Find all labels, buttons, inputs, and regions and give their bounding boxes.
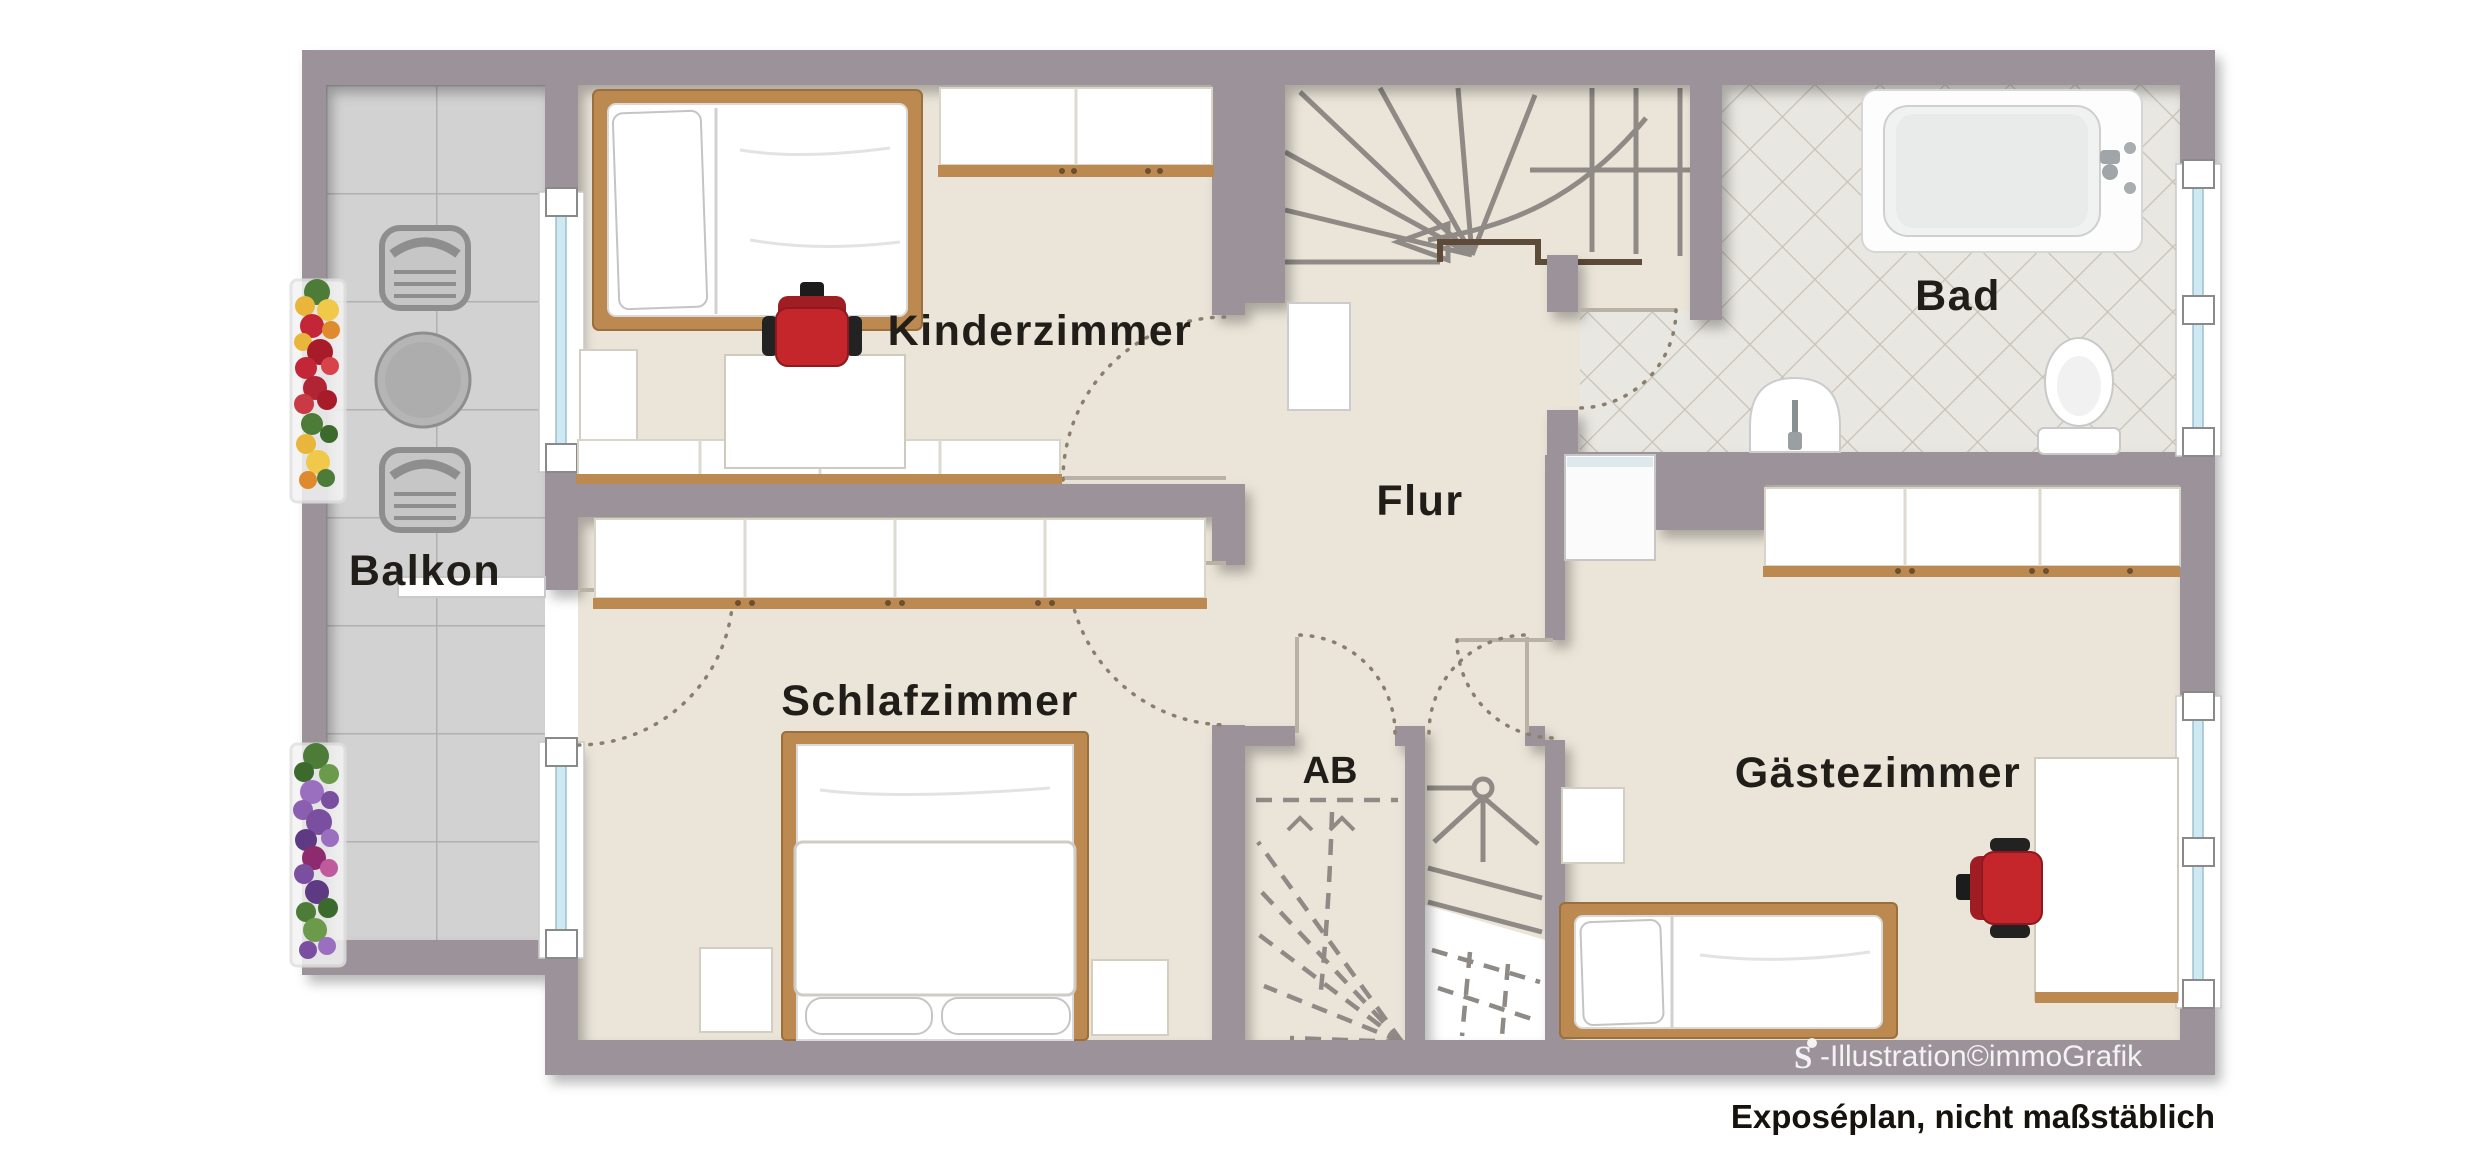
wall-stairs-left bbox=[1245, 85, 1285, 303]
window-gaestezimmer-icon bbox=[2176, 692, 2221, 1008]
wall-ab-stairwell bbox=[1405, 740, 1425, 1040]
window-kinderzimmer-icon bbox=[539, 188, 584, 472]
disclaimer-text: Exposéplan, nicht maßstäblich bbox=[1731, 1098, 2215, 1135]
wardrobe-top-icon bbox=[938, 88, 1214, 177]
pillow-icon bbox=[613, 111, 708, 310]
wall-schlaf-right-upper bbox=[1212, 517, 1245, 565]
window-schlafzimmer-icon bbox=[539, 738, 584, 958]
wall-bad-bottom bbox=[1578, 452, 2180, 485]
sparkasse-logo-dot-icon bbox=[1807, 1038, 1817, 1048]
window-bad-icon bbox=[2176, 160, 2221, 456]
wall-flur-gaeste bbox=[1545, 455, 1565, 640]
nightstand-icon bbox=[700, 948, 772, 1032]
wall-bad-left-upper bbox=[1547, 255, 1578, 312]
faucet-icon bbox=[2100, 150, 2120, 164]
wall-bad-bottom-chunk bbox=[1655, 485, 1765, 530]
balcony-chair-icon bbox=[382, 228, 468, 308]
wall-kinder-flur bbox=[1212, 85, 1245, 315]
nightstand-icon bbox=[1092, 960, 1168, 1035]
wall-schlaf-right-lower bbox=[1212, 725, 1245, 1040]
label-schlafzimmer: Schlafzimmer bbox=[781, 677, 1079, 725]
flower-box-icon bbox=[291, 279, 345, 502]
wall-bad-left-lower bbox=[1547, 410, 1578, 455]
pillow-icon bbox=[942, 998, 1070, 1034]
guest-bed-icon bbox=[1560, 903, 1897, 1038]
pillow-icon bbox=[1580, 920, 1664, 1026]
wall-post-ab-left bbox=[1245, 726, 1295, 746]
flower-box-icon bbox=[291, 743, 345, 966]
single-bed-icon bbox=[593, 90, 922, 330]
floorplan-page: Kinderzimmer Schlafzimmer Balkon Flur AB… bbox=[0, 0, 2480, 1158]
hall-cabinet-icon bbox=[1288, 303, 1350, 410]
credit-text: -Illustration©immoGrafik bbox=[1820, 1040, 2143, 1073]
sink-icon bbox=[1750, 378, 1840, 452]
pillow-icon bbox=[806, 998, 932, 1034]
wall-kinder-schlaf bbox=[578, 484, 1245, 517]
label-bad: Bad bbox=[1915, 272, 2001, 320]
bathtub-icon bbox=[1862, 90, 2142, 252]
faucet-icon bbox=[1788, 432, 1802, 450]
desk-icon bbox=[725, 355, 905, 468]
desk-icon bbox=[2035, 758, 2178, 1003]
balcony-chair-icon bbox=[382, 450, 468, 530]
wall-stairs-bad bbox=[1690, 85, 1722, 320]
duvet-icon bbox=[795, 842, 1075, 995]
wardrobe-guest-icon bbox=[1763, 488, 2180, 577]
label-balkon: Balkon bbox=[349, 547, 501, 595]
label-kinderzimmer: Kinderzimmer bbox=[888, 307, 1193, 355]
nightstand-icon bbox=[1562, 788, 1624, 863]
wardrobe-long-icon bbox=[593, 519, 1207, 609]
wall-post-ab-right bbox=[1395, 726, 1425, 746]
wall-top bbox=[302, 50, 2215, 85]
washing-machine-icon bbox=[1565, 455, 1655, 560]
label-ab: AB bbox=[1303, 750, 1358, 792]
floorplan-canvas: Kinderzimmer Schlafzimmer Balkon Flur AB… bbox=[0, 0, 2480, 1158]
label-flur: Flur bbox=[1376, 477, 1463, 525]
balcony-table-top bbox=[385, 342, 461, 418]
double-bed-icon bbox=[782, 732, 1088, 1040]
label-gaestezimmer: Gästezimmer bbox=[1735, 749, 2022, 797]
